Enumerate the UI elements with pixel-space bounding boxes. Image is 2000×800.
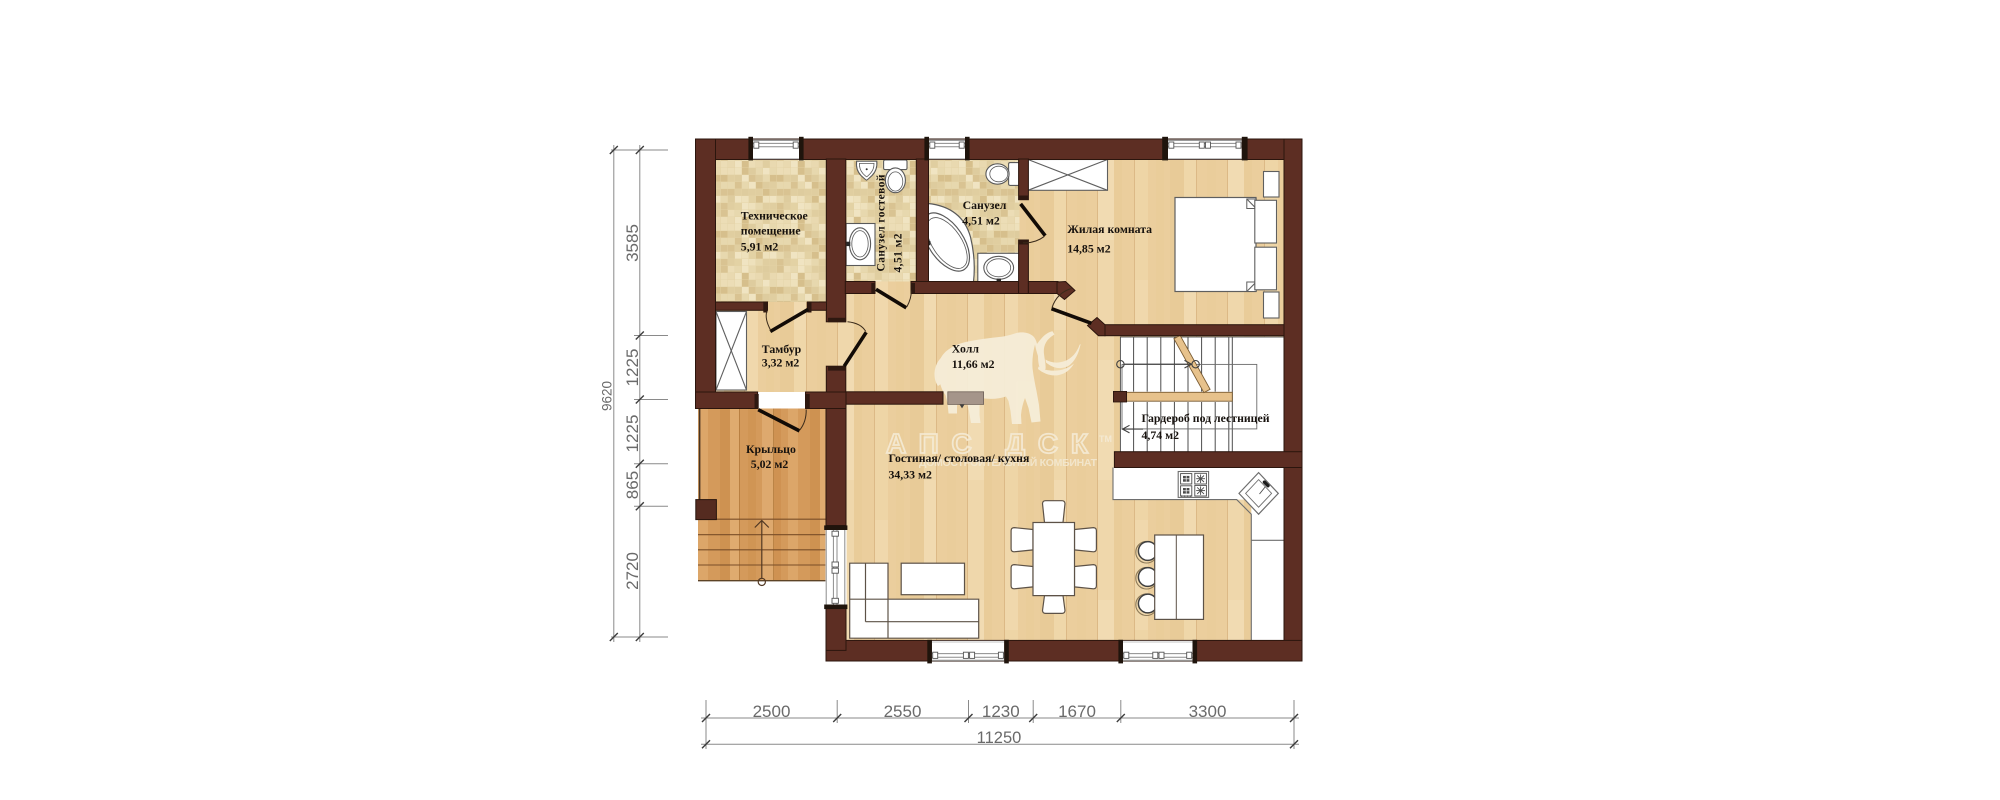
svg-text:34,33 м2: 34,33 м2 bbox=[889, 468, 933, 482]
svg-text:Техническое: Техническое bbox=[741, 208, 808, 222]
svg-text:Жилая комната: Жилая комната bbox=[1067, 222, 1152, 236]
svg-text:4,51 м2: 4,51 м2 bbox=[893, 233, 905, 272]
svg-text:1225: 1225 bbox=[623, 415, 642, 453]
svg-text:5,02 м2: 5,02 м2 bbox=[751, 457, 789, 471]
svg-text:помещение: помещение bbox=[741, 224, 801, 238]
svg-text:2720: 2720 bbox=[623, 552, 642, 590]
svg-text:4,74 м2: 4,74 м2 bbox=[1142, 428, 1180, 442]
svg-text:2500: 2500 bbox=[753, 702, 791, 721]
svg-text:Крыльцо: Крыльцо bbox=[746, 442, 796, 456]
svg-text:5,91 м2: 5,91 м2 bbox=[741, 239, 779, 253]
svg-text:3,32 м2: 3,32 м2 bbox=[762, 355, 800, 369]
svg-text:Гостиная/ столовая/ кухня: Гостиная/ столовая/ кухня bbox=[889, 451, 1030, 465]
svg-text:11,66 м2: 11,66 м2 bbox=[952, 357, 995, 371]
svg-text:4,51 м2: 4,51 м2 bbox=[962, 213, 1000, 227]
svg-text:Гардероб под лестницей: Гардероб под лестницей bbox=[1142, 411, 1270, 425]
svg-text:1670: 1670 bbox=[1058, 702, 1096, 721]
svg-text:865: 865 bbox=[623, 471, 642, 499]
svg-text:Санузел: Санузел bbox=[963, 198, 1007, 212]
svg-text:Холл: Холл bbox=[952, 341, 980, 355]
svg-text:1225: 1225 bbox=[623, 349, 642, 387]
svg-text:14,85 м2: 14,85 м2 bbox=[1067, 242, 1111, 256]
svg-text:9620: 9620 bbox=[600, 381, 615, 411]
svg-text:3300: 3300 bbox=[1189, 702, 1227, 721]
svg-text:2550: 2550 bbox=[884, 702, 922, 721]
svg-text:1230: 1230 bbox=[982, 702, 1020, 721]
svg-text:3585: 3585 bbox=[623, 224, 642, 262]
svg-text:Санузел гостевой: Санузел гостевой bbox=[876, 174, 888, 271]
svg-text:TM: TM bbox=[1099, 434, 1112, 444]
svg-text:11250: 11250 bbox=[977, 729, 1022, 747]
svg-text:Тамбур: Тамбур bbox=[762, 342, 802, 356]
